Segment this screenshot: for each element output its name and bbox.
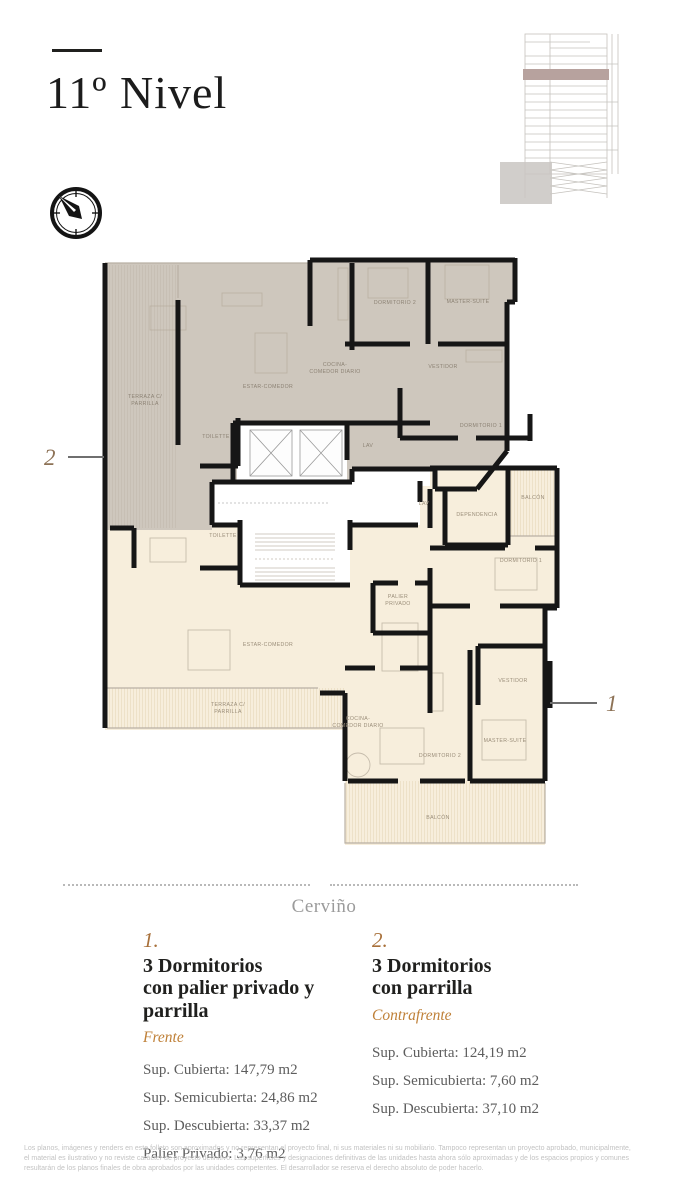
balcony-hatch-bottom — [345, 781, 545, 843]
room-label: DORMITORIO 2 — [419, 753, 461, 759]
street-dotted-line-left — [63, 884, 310, 886]
room-label: LAV — [363, 443, 374, 449]
detail-line: Sup. Cubierta: 147,79 m2 — [143, 1056, 361, 1084]
room-label: BALCÓN — [426, 814, 449, 821]
elevation-highlighted-floor — [523, 69, 609, 80]
room-label: MASTER-SUITE — [447, 299, 490, 305]
unit-1-orientation: Frente — [143, 1029, 361, 1047]
room-label: TERRAZA C/ — [128, 394, 162, 400]
room-label: BALCÓN — [521, 494, 544, 501]
unit-1-title: 3 Dormitorios con palier privado y parri… — [143, 955, 361, 1022]
floor-plan: TERRAZA C/ PARRILLA ESTAR-COMEDOR COCINA… — [0, 238, 675, 863]
street-name: Cerviño — [0, 896, 648, 918]
room-label: DORMITORIO 1 — [460, 423, 502, 429]
compass-icon — [46, 183, 106, 243]
room-label: MASTER-SUITE — [484, 738, 527, 744]
unit-1-info: 1. 3 Dormitorios con palier privado y pa… — [143, 930, 361, 1168]
unit-2-title: 3 Dormitorios con parrilla — [372, 955, 590, 1000]
disclaimer-line: Los planos, imágenes y renders en este f… — [24, 1144, 651, 1154]
disclaimer-line: resultarán de los planos finales de obra… — [24, 1164, 651, 1174]
room-label: PARRILLA — [131, 401, 159, 407]
room-label: ESTAR-COMEDOR — [243, 642, 293, 648]
room-label: DORMITORIO 2 — [374, 300, 416, 306]
balcony-hatch-top — [508, 470, 557, 536]
room-label: TERRAZA C/ — [211, 702, 245, 708]
terrace-hatch-lower — [107, 688, 345, 728]
legal-disclaimer: Los planos, imágenes y renders en este f… — [24, 1144, 651, 1174]
unit-2-number: 2. — [372, 930, 590, 951]
street-dotted-line-right — [330, 884, 578, 886]
room-label: COCINA- — [346, 716, 370, 722]
callout-number-1: 1 — [606, 691, 618, 716]
room-label: DEPENDENCIA — [456, 512, 498, 518]
detail-line: Sup. Semicubierta: 24,86 m2 — [143, 1084, 361, 1112]
room-label: ESTAR-COMEDOR — [243, 384, 293, 390]
unit-2-details: Sup. Cubierta: 124,19 m2 Sup. Semicubier… — [372, 1039, 590, 1123]
building-elevation-diagram — [490, 12, 670, 212]
room-label: COCINA- — [323, 362, 347, 368]
detail-line: Sup. Semicubierta: 7,60 m2 — [372, 1067, 590, 1095]
room-label: TOILETTE — [209, 533, 237, 539]
detail-line: Sup. Descubierta: 33,37 m2 — [143, 1112, 361, 1140]
elevation-base-block — [500, 162, 552, 204]
room-label: COMEDOR DIARIO — [332, 723, 383, 729]
callout-number-2: 2 — [44, 445, 56, 470]
unit-2-info: 2. 3 Dormitorios con parrilla Contrafren… — [372, 930, 590, 1123]
room-label: PRIVADO — [385, 601, 410, 607]
unit-2-orientation: Contrafrente — [372, 1007, 590, 1025]
disclaimer-line: el material es ilustrativo y no reviste … — [24, 1154, 651, 1164]
room-label: PALIER — [388, 594, 408, 600]
room-label: TOILETTE — [202, 434, 230, 440]
room-label: COMEDOR DIARIO — [309, 369, 360, 375]
unit-1-number: 1. — [143, 930, 361, 951]
room-label: VESTIDOR — [498, 678, 527, 684]
page-title: 11º Nivel — [46, 66, 227, 119]
room-label: PARRILLA — [214, 709, 242, 715]
detail-line: Sup. Cubierta: 124,19 m2 — [372, 1039, 590, 1067]
elevation-outline — [525, 34, 607, 174]
title-rule — [52, 49, 102, 52]
room-label: LAV — [419, 501, 430, 507]
detail-line: Sup. Descubierta: 37,10 m2 — [372, 1095, 590, 1123]
stair-room — [240, 520, 350, 585]
room-label: VESTIDOR — [428, 364, 457, 370]
room-label: DORMITORIO 1 — [500, 558, 542, 564]
